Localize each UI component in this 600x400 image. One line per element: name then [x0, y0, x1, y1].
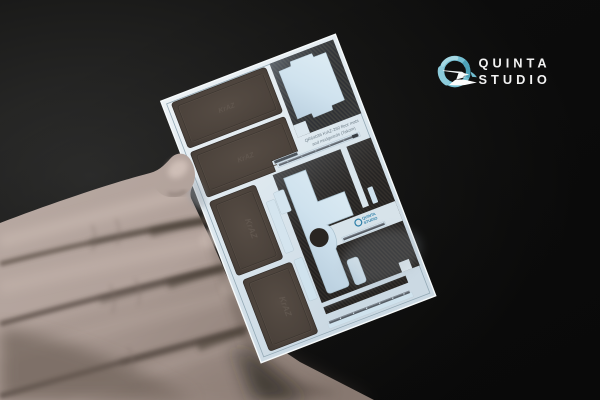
svg-text:STUDIO: STUDIO	[479, 72, 551, 87]
svg-text:QUINTA: QUINTA	[479, 56, 551, 71]
